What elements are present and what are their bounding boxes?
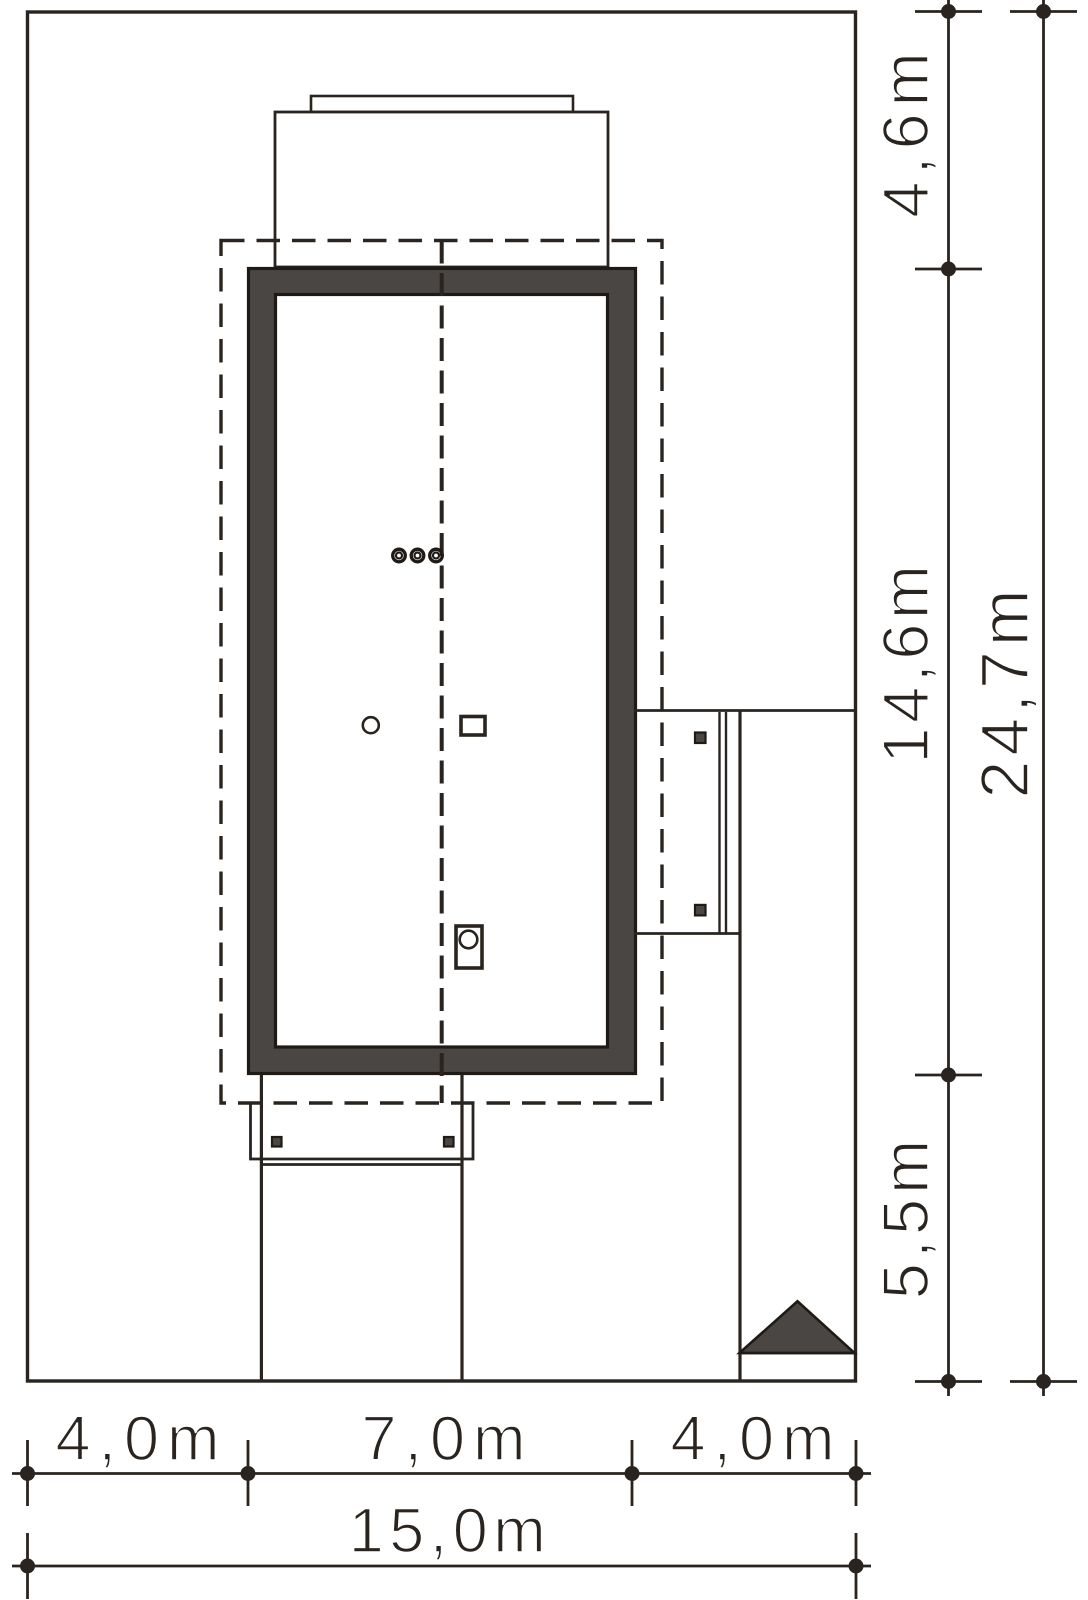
svg-text:14,6m: 14,6m bbox=[869, 560, 942, 763]
svg-text:7,0m: 7,0m bbox=[361, 1404, 533, 1474]
svg-text:4,0m: 4,0m bbox=[670, 1404, 842, 1474]
svg-text:4,0m: 4,0m bbox=[55, 1404, 227, 1474]
svg-text:4,6m: 4,6m bbox=[869, 45, 942, 218]
svg-text:15,0m: 15,0m bbox=[349, 1496, 552, 1566]
svg-text:24,7m: 24,7m bbox=[967, 585, 1043, 799]
svg-text:5,5m: 5,5m bbox=[869, 1135, 942, 1300]
